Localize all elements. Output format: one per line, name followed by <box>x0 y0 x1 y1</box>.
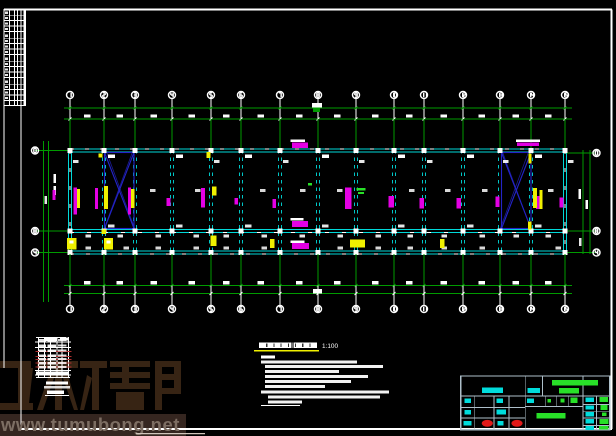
svg-text:1:100: 1:100 <box>322 343 338 350</box>
svg-text:www.tumubong.net: www.tumubong.net <box>0 414 180 435</box>
